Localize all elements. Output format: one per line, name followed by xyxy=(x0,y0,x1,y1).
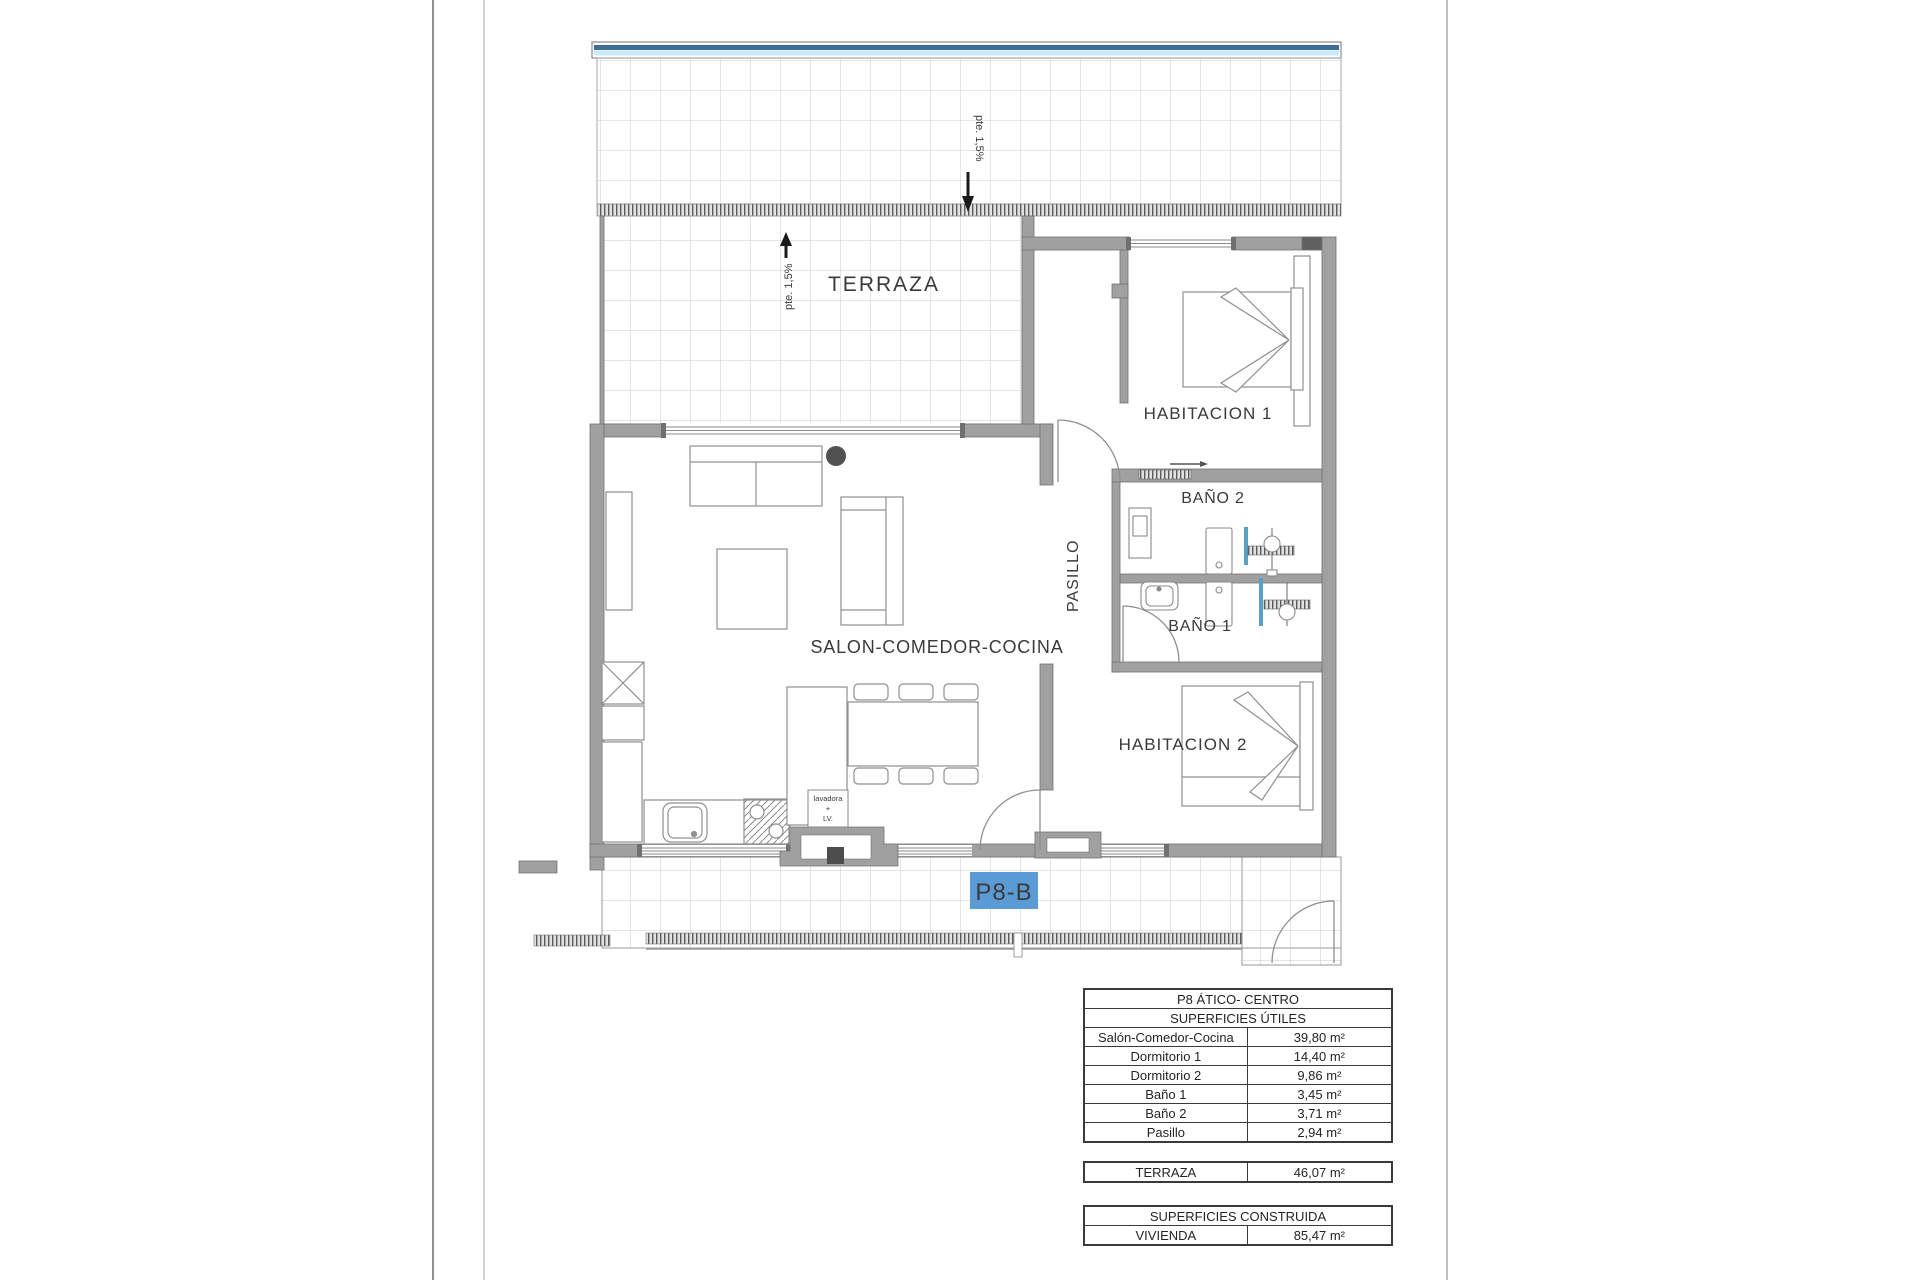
bottom-terrace xyxy=(534,857,1341,965)
unit-badge: P8-B xyxy=(970,872,1038,909)
terraza-slope-label: pte. 1,5% xyxy=(783,263,795,310)
area-label-cell: Salón-Comedor-Cocina xyxy=(1084,1028,1247,1047)
wall-hab1-partition-block xyxy=(1112,284,1128,298)
window-salon-bottom-right xyxy=(888,845,972,856)
shower-head-icon xyxy=(1264,536,1280,552)
table-row: Dormitorio 1 14,40 m² xyxy=(1084,1047,1392,1066)
table-row: Dormitorio 2 9,86 m² xyxy=(1084,1066,1392,1085)
wall-pasillo-west-top xyxy=(1040,424,1053,485)
area-value-cell: 9,86 m² xyxy=(1247,1066,1392,1085)
wall-right-exterior xyxy=(1322,237,1336,857)
shower-glass xyxy=(1244,527,1248,565)
window-salon-top xyxy=(661,423,965,438)
terraza-table: TERRAZA 46,07 m² xyxy=(1083,1161,1393,1183)
table-row: TERRAZA 46,07 m² xyxy=(1084,1162,1392,1182)
kitchen-stove xyxy=(744,799,789,844)
door-habitacion1 xyxy=(1058,420,1120,482)
laundry-label-2: + xyxy=(826,804,831,813)
room-label-salon: SALON-COMEDOR-COCINA xyxy=(810,637,1063,657)
table-row: Baño 1 3,45 m² xyxy=(1084,1085,1392,1104)
area-label-cell: Dormitorio 1 xyxy=(1084,1047,1247,1066)
table-row: Salón-Comedor-Cocina 39,80 m² xyxy=(1084,1028,1392,1047)
wall-pasillo-banos-divider xyxy=(1112,482,1120,672)
dining-chair xyxy=(899,684,933,700)
bed-headboard xyxy=(1291,288,1303,390)
laundry-label-3: LV. xyxy=(823,814,833,823)
laundry-label-1: lavadora xyxy=(814,794,844,803)
area-value-cell: 14,40 m² xyxy=(1247,1047,1392,1066)
area-value-cell: 2,94 m² xyxy=(1247,1123,1392,1143)
dining-set xyxy=(848,684,978,784)
area-label-cell: Baño 2 xyxy=(1084,1104,1247,1123)
wall-pasillo-west-bottom xyxy=(1040,664,1053,790)
terraza-floor-tiles xyxy=(602,216,1022,424)
room-label-terraza: TERRAZA xyxy=(828,273,940,296)
kitchen-unit xyxy=(602,706,644,740)
kitchen-fridge-column xyxy=(602,742,642,842)
shower-head-icon xyxy=(1279,604,1295,620)
dining-chair xyxy=(944,768,978,784)
dining-chair xyxy=(899,768,933,784)
room-label-habitacion2: HABITACION 2 xyxy=(1119,735,1248,754)
roof-slope-label: pte. 1,5% xyxy=(973,115,985,162)
superficies-utiles-table: P8 ÁTICO- CENTRO SUPERFICIES ÚTILES Saló… xyxy=(1083,988,1393,1143)
table-row: Pasillo 2,94 m² xyxy=(1084,1123,1392,1143)
area-value-cell: 39,80 m² xyxy=(1247,1028,1392,1047)
wall-hab1-partition xyxy=(1120,250,1128,403)
area-label-cell: TERRAZA xyxy=(1084,1162,1247,1182)
wall-terraza-left xyxy=(600,216,604,424)
sofa-small xyxy=(841,497,903,625)
window-kitchen-bottom xyxy=(637,844,791,857)
wall-neighbor-stub xyxy=(519,861,557,873)
bed-headboard xyxy=(1300,682,1313,810)
room-label-bano1: BAÑO 1 xyxy=(1168,615,1232,635)
room-label-pasillo: PASILLO xyxy=(1065,539,1082,612)
room-label-habitacion1: HABITACION 1 xyxy=(1144,404,1273,423)
area-label-cell: Pasillo xyxy=(1084,1123,1247,1143)
shower-glass xyxy=(1259,578,1263,626)
table-row: Baño 2 3,71 m² xyxy=(1084,1104,1392,1123)
dining-chair xyxy=(944,684,978,700)
kitchen-sink xyxy=(663,803,707,842)
plan-sheet: pte. 1,5% pte. 1,5% TERRAZA xyxy=(0,0,1920,1280)
area-label-cell: Dormitorio 2 xyxy=(1084,1066,1247,1085)
superficies-construida-table: SUPERFICIES CONSTRUIDA VIVIENDA 85,47 m² xyxy=(1083,1205,1393,1246)
table-row: VIVIENDA 85,47 m² xyxy=(1084,1226,1392,1246)
area-label-cell: Baño 1 xyxy=(1084,1085,1247,1104)
bano2-fixtures xyxy=(1129,508,1294,576)
floor-plan-drawing: pte. 1,5% pte. 1,5% TERRAZA xyxy=(0,0,1920,1280)
area-value-cell: 3,71 m² xyxy=(1247,1104,1392,1123)
wall-corner-block xyxy=(1302,237,1322,250)
table-header-construida: SUPERFICIES CONSTRUIDA xyxy=(1084,1206,1392,1226)
column xyxy=(826,446,846,466)
area-value-cell: 85,47 m² xyxy=(1247,1226,1392,1246)
kitchen: lavadora + LV. xyxy=(602,662,848,844)
area-value-cell: 46,07 m² xyxy=(1247,1162,1392,1182)
wall-bano1-south xyxy=(1112,662,1322,672)
sofa-large xyxy=(690,446,822,506)
unit-badge-label: P8-B xyxy=(975,879,1032,906)
shelf-unit xyxy=(606,492,632,610)
laundry-box: lavadora + LV. xyxy=(808,790,848,827)
door-habitacion2 xyxy=(980,790,1040,850)
table-title: P8 ÁTICO- CENTRO xyxy=(1084,989,1392,1009)
area-value-cell: 3,45 m² xyxy=(1247,1085,1392,1104)
window-hab1-top xyxy=(1126,236,1236,251)
dining-chair xyxy=(854,684,888,700)
kitchen-oven-unit xyxy=(602,662,644,704)
salon-furniture xyxy=(606,446,903,629)
bathroom-fixtures xyxy=(1129,508,1310,626)
area-label-cell: VIVIENDA xyxy=(1084,1226,1247,1246)
dining-table xyxy=(848,702,978,766)
table-header-utiles: SUPERFICIES ÚTILES xyxy=(1084,1009,1392,1028)
roof-canopy-band xyxy=(592,42,1341,58)
dining-chair xyxy=(854,768,888,784)
sliding-door-arrow-icon xyxy=(1200,461,1208,467)
porch-post xyxy=(827,847,844,864)
coffee-table xyxy=(717,549,787,629)
room-label-bano2: BAÑO 2 xyxy=(1181,487,1245,507)
area-tables: P8 ÁTICO- CENTRO SUPERFICIES ÚTILES Saló… xyxy=(1083,988,1393,1246)
bed-habitacion-1 xyxy=(1183,256,1310,426)
